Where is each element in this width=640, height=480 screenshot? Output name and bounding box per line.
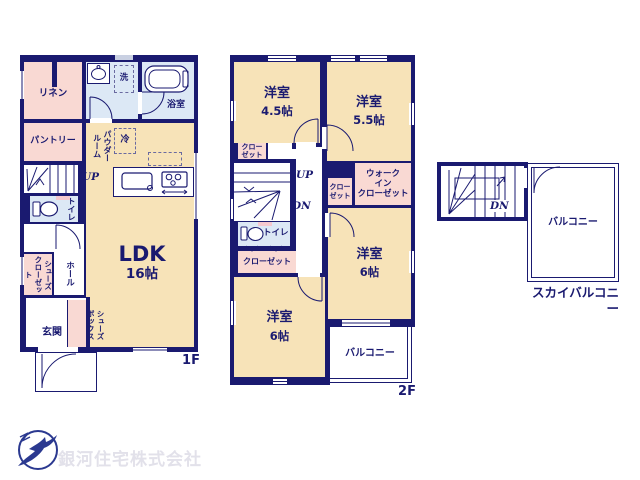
bird-logo-icon	[12, 424, 62, 474]
floorplan-canvas: リネン パントリー 洗 浴室 パウダー	[0, 0, 640, 480]
company-logo	[12, 424, 62, 474]
entrance-door-arc	[36, 353, 96, 391]
roof-stairs-inner	[441, 166, 524, 217]
entrance-porch	[35, 352, 97, 392]
company-name: 銀河住宅株式会社	[58, 445, 258, 470]
stairs-roof-dn-label: DN	[489, 200, 510, 212]
roof-balcony-door-arc	[528, 164, 568, 200]
floor-2f-plan: 洋室 4.5帖 洋室 5.5帖 クロー ゼット UP DN クロー ゼット ウォ…	[230, 55, 415, 385]
doors-2f	[230, 55, 415, 385]
stairs-roof-icon	[441, 166, 524, 217]
roof-balcony: バルコニー	[527, 163, 619, 282]
roof-balcony-label: バルコニー	[528, 216, 618, 229]
floor-1f-label: 1F	[178, 353, 204, 370]
floor-2f-label: 2F	[394, 384, 420, 401]
sky-balcony-label: スカイバルコニー	[527, 285, 619, 318]
doors-1f	[20, 55, 198, 352]
floor-1f-plan: リネン パントリー 洗 浴室 パウダー	[20, 55, 198, 352]
roof-stairs-box: DN	[437, 162, 528, 221]
